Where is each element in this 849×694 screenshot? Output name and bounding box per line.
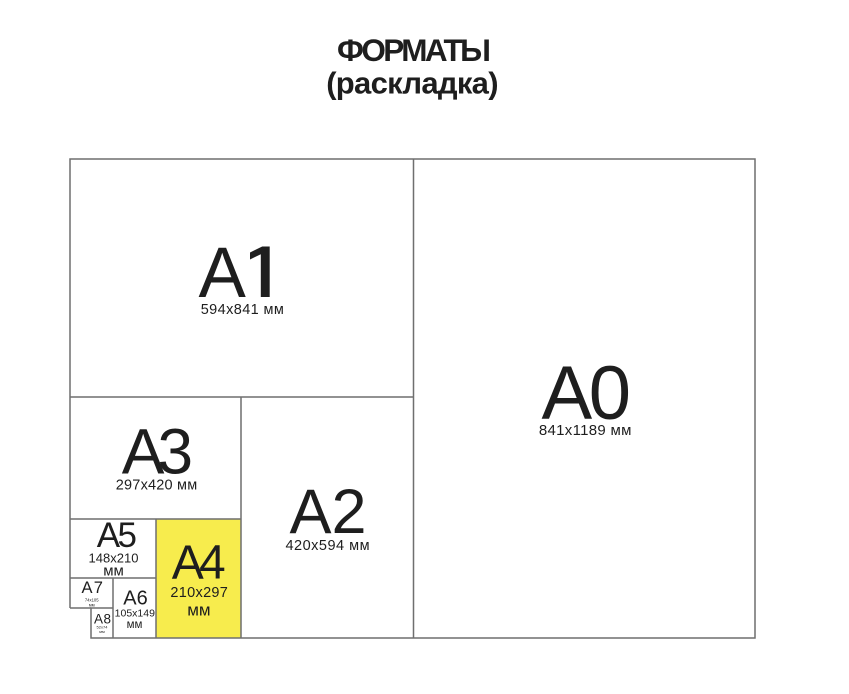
svg-text:ФОРМАТЫ: ФОРМАТЫ: [337, 32, 489, 68]
svg-text:мм: мм: [103, 563, 124, 580]
svg-text:мм: мм: [99, 629, 105, 634]
svg-text:297x420 мм: 297x420 мм: [116, 478, 198, 494]
svg-text:A4: A4: [172, 537, 225, 590]
svg-text:A2: A2: [289, 477, 366, 547]
svg-text:A7: A7: [82, 579, 105, 597]
svg-text:мм: мм: [127, 619, 143, 631]
svg-text:105x149: 105x149: [115, 608, 155, 620]
svg-text:A5: A5: [97, 516, 136, 555]
svg-text:210x297: 210x297: [170, 585, 228, 601]
svg-text:мм: мм: [187, 600, 210, 619]
svg-text:594x841 мм: 594x841 мм: [201, 302, 285, 318]
svg-text:841x1189 мм: 841x1189 мм: [539, 422, 632, 439]
svg-text:мм: мм: [89, 602, 95, 607]
svg-text:A6: A6: [123, 588, 147, 610]
svg-text:(раскладка): (раскладка): [326, 66, 498, 101]
svg-text:420x594 мм: 420x594 мм: [285, 538, 370, 554]
